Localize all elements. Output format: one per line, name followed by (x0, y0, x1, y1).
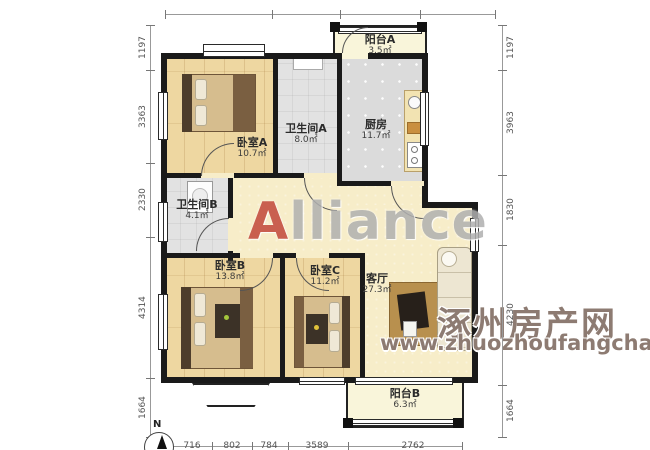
dimension-value: 2915 (286, 0, 326, 3)
dimension-line (150, 25, 151, 437)
window (420, 92, 429, 146)
dimension-value: 2547 (360, 0, 400, 3)
balcony-slider-window (355, 377, 453, 385)
bed-b-headboard (181, 287, 191, 369)
window (158, 294, 168, 350)
alliance-watermark: Alliance (248, 192, 488, 252)
wall-post (417, 22, 427, 32)
stove-burner (411, 157, 418, 164)
dimension-value: 2925 (437, 0, 477, 3)
dimension-tick (420, 10, 421, 19)
bed-a-blanket (233, 75, 255, 131)
dimension-line (502, 25, 503, 437)
dimension-value: 4230 (505, 245, 517, 385)
wall (280, 253, 285, 383)
bay-window (203, 44, 265, 57)
bed-a-pillow (195, 79, 207, 100)
compass-north-label: N (153, 419, 161, 430)
dimension-value: 4314 (137, 237, 149, 378)
dimension-value: 3963 (505, 70, 517, 175)
balcony-b-window (352, 419, 458, 426)
door-opening (342, 53, 368, 59)
bed-a-pillow (195, 105, 207, 126)
wall-post (453, 418, 463, 428)
dimension-value: 2762 (393, 441, 433, 450)
dimension-line (165, 14, 495, 15)
bed-c-footboard (295, 297, 304, 367)
bed-a-headboard (182, 74, 192, 132)
bed-b-accent (224, 315, 229, 320)
bed-c-headboard (342, 296, 350, 368)
wall (337, 53, 342, 186)
bed-b-footboard (240, 288, 253, 368)
bed-b-pillow (194, 293, 206, 317)
dimension-tick (340, 10, 341, 19)
stove-burner (411, 146, 418, 153)
alliance-watermark-initial: A (248, 192, 289, 252)
bed-c-accent (314, 325, 319, 330)
bed-c-pillow (329, 330, 340, 352)
dimension-value: 3589 (297, 441, 337, 450)
sofa-pillow (441, 251, 457, 267)
dimension-value: 1197 (137, 25, 149, 70)
dimension-value: 1197 (505, 25, 517, 70)
alliance-watermark-text: lliance (289, 192, 488, 252)
floorplan-canvas: 阳台A 3.5㎡ 卧室A 10.7㎡ 卫生间A 8.0㎡ 厨房 11.7㎡ 卫生… (0, 0, 650, 450)
dimension-tick (498, 437, 507, 438)
wall-post (343, 418, 353, 428)
bed-b-pillow (194, 322, 206, 346)
dimension-tick (495, 10, 496, 19)
dimension-value: 1664 (505, 385, 517, 437)
washing-machine-drum (192, 188, 208, 204)
bed-b-blanket (215, 304, 241, 338)
window (299, 377, 345, 385)
window (158, 202, 168, 242)
wall-post (330, 22, 340, 32)
bathroom-a-shelf (293, 58, 323, 70)
wall (161, 53, 428, 59)
dimension-value: 2900 (198, 0, 238, 3)
bay-window (192, 383, 270, 407)
dimension-value: 1664 (137, 378, 149, 437)
wall (360, 253, 365, 383)
window (158, 92, 168, 140)
dimension-tick (462, 442, 463, 450)
dimension-tick (165, 10, 166, 19)
dimension-value: 2330 (137, 163, 149, 237)
dimension-value: 784 (249, 441, 289, 450)
dimension-value: 802 (212, 441, 252, 450)
bed-c-pillow (329, 302, 340, 324)
compass-needle-icon (157, 435, 167, 449)
dimension-tick (272, 10, 273, 19)
dimension-value: 3363 (137, 70, 149, 163)
dimension-tick (348, 442, 349, 450)
wall (273, 53, 278, 178)
dimension-value: 1830 (505, 175, 517, 245)
dimension-value: 716 (172, 441, 212, 450)
bathroom-a-floor (276, 56, 340, 176)
